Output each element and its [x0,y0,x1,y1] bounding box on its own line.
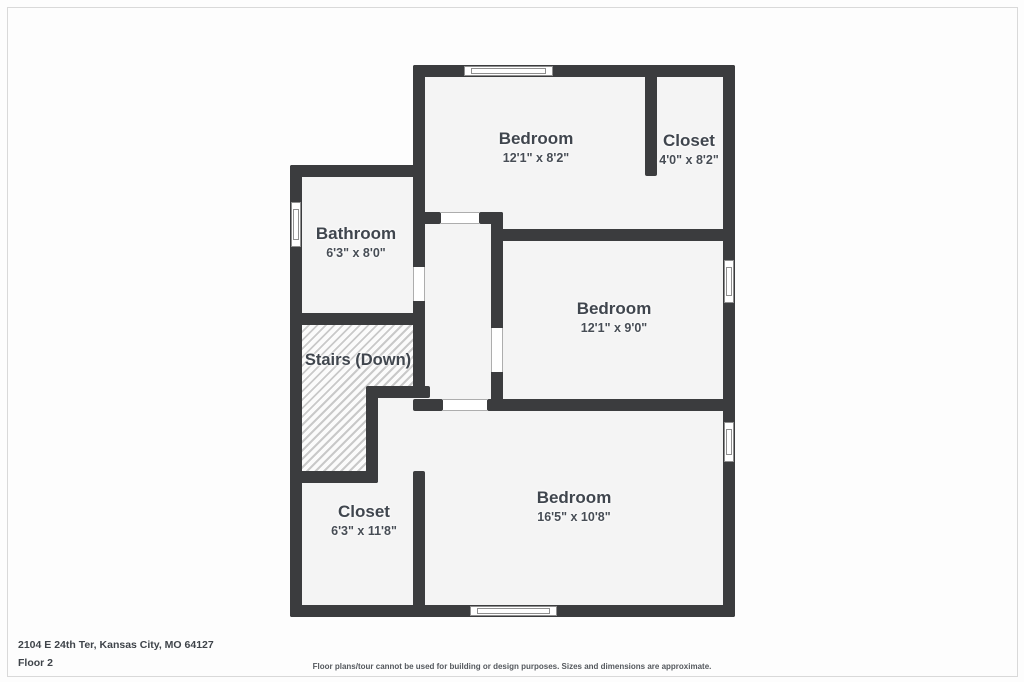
window-bathroom [291,202,301,247]
wall-exterior-top [413,65,735,77]
room-dims: 6'3" x 8'0" [316,246,396,260]
wall-hall-right [491,212,503,411]
room-name: Bathroom [316,225,396,243]
wall-bottom-closet-partition [413,471,425,617]
room-name: Bedroom [499,130,574,148]
window-top-bedroom [464,66,553,76]
wall-middle-bedroom-bottom [487,399,735,411]
window-bottom-bedroom-right [724,422,734,462]
door-opening-middle-bedroom [491,328,503,372]
window-glass [471,68,546,74]
room-name: Closet [659,132,719,150]
window-glass [293,209,299,240]
room-name: Closet [331,503,397,521]
room-label-bedroom-middle: Bedroom 12'1" x 9'0" [577,300,652,335]
room-label-bathroom: Bathroom 6'3" x 8'0" [316,225,396,260]
wall-top-closet-partition [645,65,657,176]
fill-hallway [413,212,503,411]
door-opening-bottom-bedroom [443,399,487,411]
room-dims: 12'1" x 8'2" [499,151,574,165]
wall-stairs-inner-vertical [366,386,378,483]
stairs-hatch-lower [302,325,366,471]
room-name: Bedroom [577,300,652,318]
floor-label: Floor 2 [18,657,53,669]
room-label-bedroom-top: Bedroom 12'1" x 8'2" [499,130,574,165]
room-label-closet-top: Closet 4'0" x 8'2" [659,132,719,167]
room-dims: 16'5" x 10'8" [537,510,612,524]
window-glass [726,267,732,296]
room-label-closet-bottom: Closet 6'3" x 11'8" [331,503,397,538]
disclaimer-text: Floor plans/tour cannot be used for buil… [313,662,712,671]
floor-plan: Bedroom 12'1" x 8'2" Closet 4'0" x 8'2" … [0,0,1024,682]
wall-stairs-bottom [290,471,378,483]
fill-bottom-closet [290,471,425,617]
room-dims: 6'3" x 11'8" [331,524,397,538]
room-label-stairs: Stairs (Down) [305,352,411,369]
window-bottom-bedroom [470,606,557,616]
wall-hall-bottom-stub [413,399,443,411]
window-middle-bedroom [724,260,734,303]
wall-bathroom-top [290,165,425,177]
room-label-bedroom-bottom: Bedroom 16'5" x 10'8" [537,489,612,524]
door-opening-bathroom [413,267,425,301]
window-glass [726,429,732,455]
wall-hall-left [413,65,425,398]
room-name: Bedroom [537,489,612,507]
wall-middle-bedroom-top [491,229,735,241]
room-dims: 12'1" x 9'0" [577,321,652,335]
wall-bathroom-bottom [290,313,425,325]
wall-exterior-right [723,65,735,617]
window-glass [477,608,550,614]
address-label: 2104 E 24th Ter, Kansas City, MO 64127 [18,639,214,651]
room-dims: 4'0" x 8'2" [659,153,719,167]
wall-hall-top-stub [413,212,441,224]
room-name: Stairs (Down) [305,352,411,369]
door-opening-top-bedroom [441,212,479,224]
